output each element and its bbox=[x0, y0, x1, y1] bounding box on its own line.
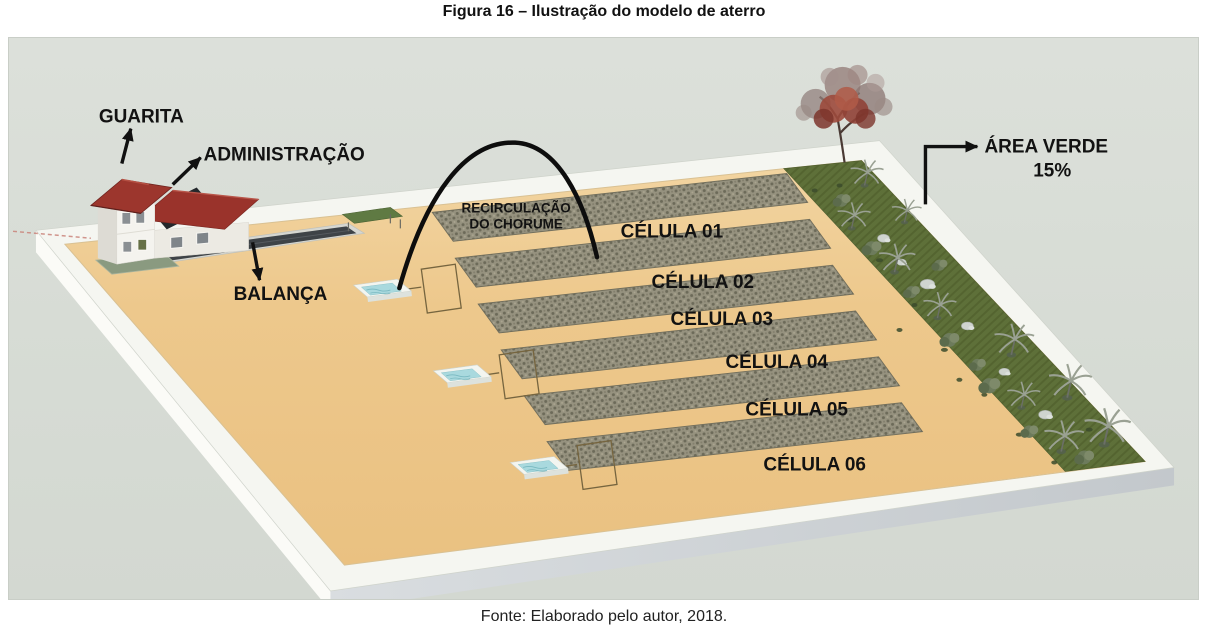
landfill-illustration: GUARITA ADMINISTRAÇÃO BALANÇA RECIRCULAÇ… bbox=[8, 37, 1199, 600]
cell-label-1: CÉLULA 01 bbox=[621, 220, 724, 242]
cell-label-2: CÉLULA 02 bbox=[652, 271, 755, 293]
document-page: Figura 16 – Ilustração do modelo de ater… bbox=[0, 0, 1208, 638]
cell-label-3: CÉLULA 03 bbox=[671, 308, 774, 330]
figure-caption: Fonte: Elaborado pelo autor, 2018. bbox=[0, 608, 1208, 626]
cell-label-5: CÉLULA 05 bbox=[745, 399, 848, 421]
area-verde-label: ÁREA VERDE bbox=[984, 136, 1108, 158]
cell-label-6: CÉLULA 06 bbox=[763, 453, 866, 475]
recirculacao-label-line1: RECIRCULAÇÃO bbox=[462, 200, 571, 215]
figure-title: Figura 16 – Ilustração do modelo de ater… bbox=[0, 3, 1208, 21]
guarita-label: GUARITA bbox=[99, 107, 184, 128]
recirculacao-label-line2: DO CHORUME bbox=[469, 216, 563, 231]
landfill-scene: GUARITA ADMINISTRAÇÃO BALANÇA RECIRCULAÇ… bbox=[9, 38, 1198, 599]
area-verde-percent: 15% bbox=[1033, 161, 1071, 182]
cell-label-4: CÉLULA 04 bbox=[725, 351, 828, 373]
balanca-label: BALANÇA bbox=[234, 284, 328, 305]
administracao-label: ADMINISTRAÇÃO bbox=[204, 144, 365, 166]
